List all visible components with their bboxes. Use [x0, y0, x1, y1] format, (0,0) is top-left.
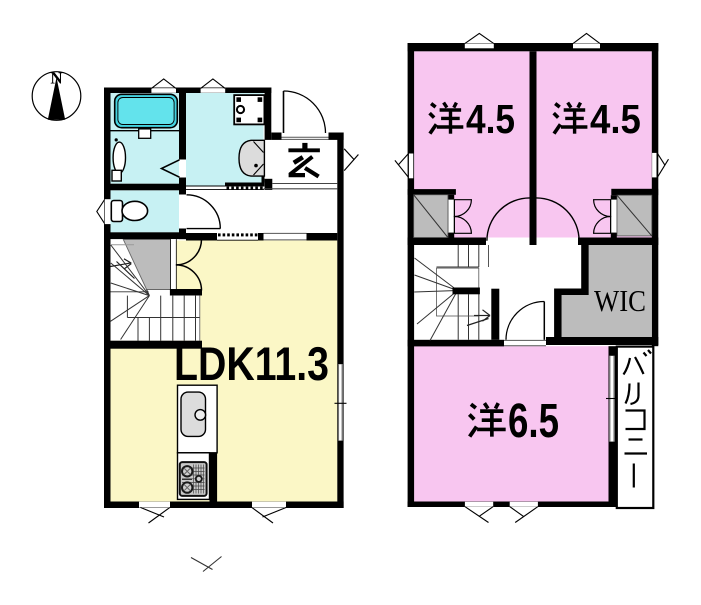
svg-text:WIC: WIC: [594, 283, 646, 318]
svg-text:N: N: [50, 69, 63, 88]
svg-text:6.5: 6.5: [508, 395, 559, 448]
svg-text:LDK11.3: LDK11.3: [174, 338, 329, 391]
svg-text:4.5: 4.5: [466, 96, 515, 142]
svg-text:4.5: 4.5: [590, 96, 641, 142]
